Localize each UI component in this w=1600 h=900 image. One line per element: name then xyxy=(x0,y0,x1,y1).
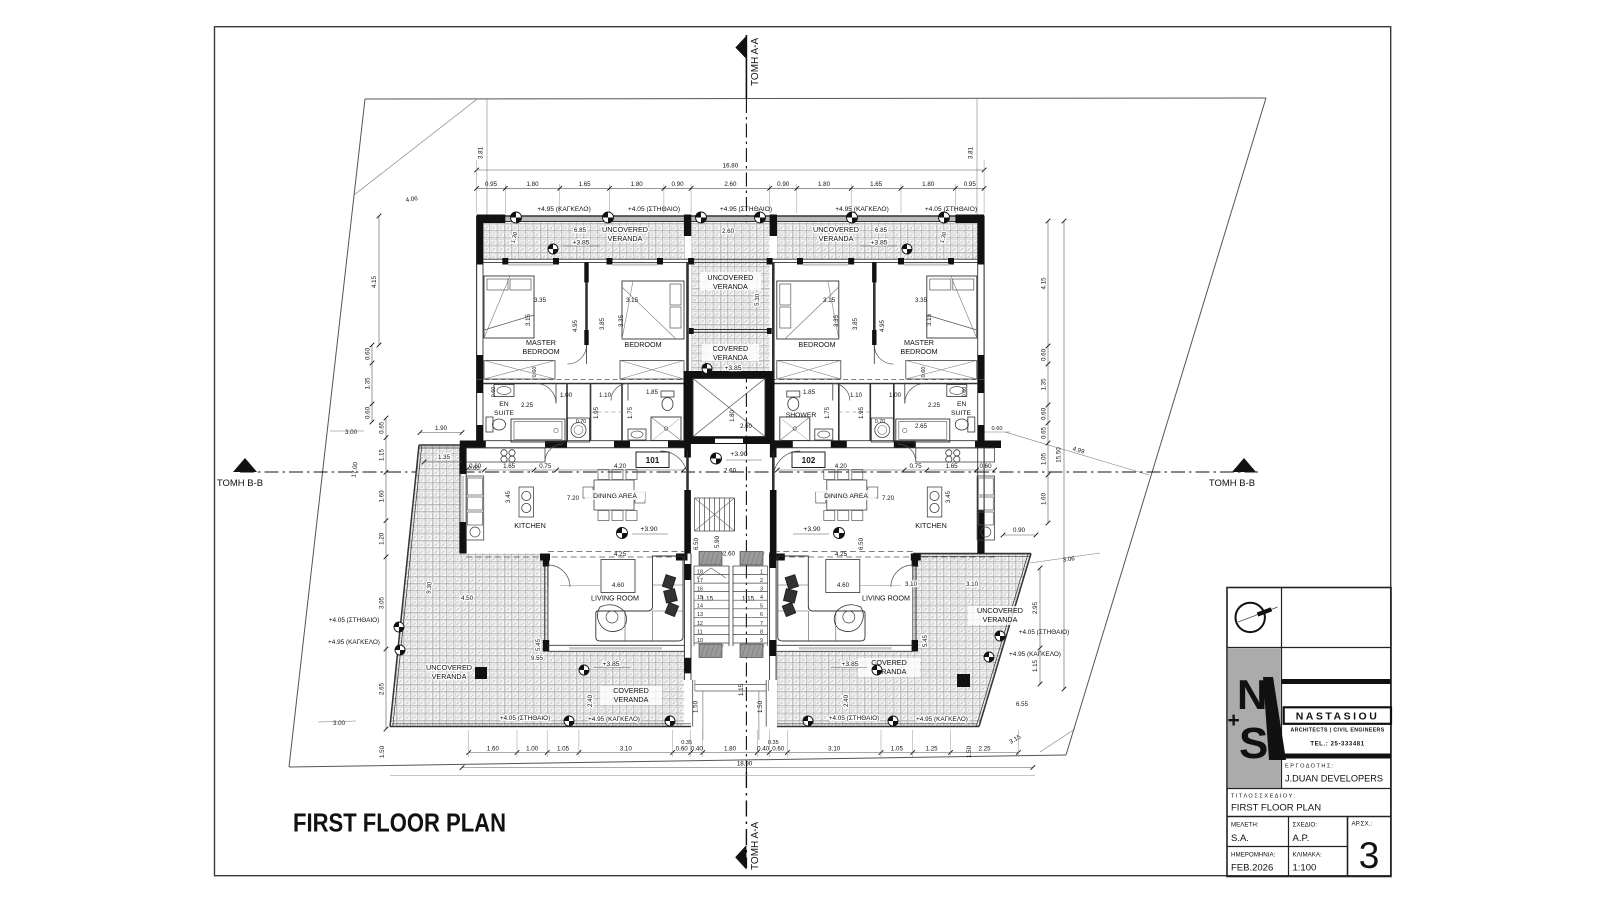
svg-text:16.80: 16.80 xyxy=(723,163,739,170)
svg-text:A.P.: A.P. xyxy=(1293,833,1310,844)
svg-text:+3.85: +3.85 xyxy=(870,240,887,247)
svg-text:12: 12 xyxy=(697,621,703,627)
svg-text:1.85: 1.85 xyxy=(646,389,659,396)
svg-text:1.50: 1.50 xyxy=(757,700,764,713)
svg-text:102: 102 xyxy=(802,456,816,465)
svg-text:ΚΛΙΜΑΚΑ:: ΚΛΙΜΑΚΑ: xyxy=(1293,852,1323,859)
svg-text:1.05: 1.05 xyxy=(891,745,904,752)
svg-text:3.10: 3.10 xyxy=(828,745,841,752)
svg-text:VERANDA: VERANDA xyxy=(608,234,643,243)
svg-text:9.55: 9.55 xyxy=(531,655,544,662)
svg-text:0.40: 0.40 xyxy=(757,745,770,752)
svg-text:0.60: 0.60 xyxy=(468,466,479,472)
svg-text:1.10: 1.10 xyxy=(599,392,612,399)
svg-text:4.15: 4.15 xyxy=(1041,277,1048,290)
svg-text:SHOWER: SHOWER xyxy=(786,412,817,419)
svg-text:1: 1 xyxy=(760,570,763,576)
svg-text:+3.85: +3.85 xyxy=(572,240,589,247)
svg-text:0.75: 0.75 xyxy=(539,463,552,470)
svg-text:1.00: 1.00 xyxy=(889,392,902,399)
svg-text:+4.95 (ΚΑΓΚΕΛΟ): +4.95 (ΚΑΓΚΕΛΟ) xyxy=(588,716,640,723)
svg-text:2.60: 2.60 xyxy=(723,551,736,558)
svg-text:1:100: 1:100 xyxy=(1293,863,1317,874)
svg-text:2.25: 2.25 xyxy=(978,745,991,752)
svg-text:1.75: 1.75 xyxy=(824,406,831,419)
svg-text:J.DUAN DEVELOPERS: J.DUAN DEVELOPERS xyxy=(1285,774,1383,784)
svg-text:3.85: 3.85 xyxy=(852,317,859,330)
svg-text:1.35: 1.35 xyxy=(438,454,451,461)
svg-text:ARCHITECTS | CIVIL ENGINEERS: ARCHITECTS | CIVIL ENGINEERS xyxy=(1290,728,1384,734)
svg-text:1.80: 1.80 xyxy=(526,181,539,188)
svg-text:5: 5 xyxy=(760,604,763,610)
svg-text:9: 9 xyxy=(760,638,763,644)
svg-text:KITCHEN: KITCHEN xyxy=(514,521,546,530)
svg-text:3: 3 xyxy=(760,587,763,593)
svg-text:ΤΟΜΗ Α-Α: ΤΟΜΗ Α-Α xyxy=(750,38,761,86)
svg-text:FIRST FLOOR PLAN: FIRST FLOOR PLAN xyxy=(293,810,506,838)
svg-text:0.60: 0.60 xyxy=(1041,407,1048,420)
svg-text:1.85: 1.85 xyxy=(803,389,816,396)
svg-text:0.75: 0.75 xyxy=(909,463,922,470)
svg-text:1.05: 1.05 xyxy=(1041,452,1048,465)
svg-text:2.95: 2.95 xyxy=(1032,601,1039,614)
svg-text:ΤΟΜΗ B-B: ΤΟΜΗ B-B xyxy=(1209,478,1255,489)
svg-text:6.85: 6.85 xyxy=(574,227,587,234)
svg-text:0.90: 0.90 xyxy=(777,181,790,188)
svg-text:MASTER: MASTER xyxy=(904,338,934,347)
svg-text:1.15: 1.15 xyxy=(738,683,745,696)
svg-text:3.45: 3.45 xyxy=(505,490,512,503)
svg-text:+4.95 (ΣΤΗΘΑΙΟ): +4.95 (ΣΤΗΘΑΙΟ) xyxy=(720,206,772,213)
svg-text:0.60: 0.60 xyxy=(962,387,968,398)
svg-text:3.10: 3.10 xyxy=(966,581,979,588)
svg-text:3.15: 3.15 xyxy=(926,313,933,326)
svg-text:UNCOVERED: UNCOVERED xyxy=(977,606,1023,615)
svg-text:0.40: 0.40 xyxy=(691,745,704,752)
svg-text:4.20: 4.20 xyxy=(614,463,627,470)
svg-text:6.85: 6.85 xyxy=(875,227,888,234)
svg-text:1.60: 1.60 xyxy=(487,745,500,752)
svg-text:UNCOVERED: UNCOVERED xyxy=(813,225,859,234)
svg-text:1.95: 1.95 xyxy=(593,406,600,419)
svg-text:0.95: 0.95 xyxy=(485,181,498,188)
svg-text:4.95: 4.95 xyxy=(879,319,886,332)
svg-text:4.25: 4.25 xyxy=(835,551,848,558)
svg-text:ΤΟΜΗ Α-Α: ΤΟΜΗ Α-Α xyxy=(750,822,761,870)
svg-text:Τ Ι Τ Λ Ο Σ Σ Χ Ε Δ Ι Ο Υ :: Τ Ι Τ Λ Ο Σ Σ Χ Ε Δ Ι Ο Υ : xyxy=(1231,794,1296,800)
svg-text:1.80: 1.80 xyxy=(724,745,737,752)
svg-text:0.60: 0.60 xyxy=(1041,348,1048,361)
svg-text:1.80: 1.80 xyxy=(631,181,644,188)
svg-text:18: 18 xyxy=(697,570,703,576)
svg-text:1.65: 1.65 xyxy=(579,181,592,188)
svg-text:3.35: 3.35 xyxy=(915,297,928,304)
svg-text:1.15: 1.15 xyxy=(742,596,755,603)
svg-text:BEDROOM: BEDROOM xyxy=(624,340,661,349)
svg-text:0.65: 0.65 xyxy=(379,421,386,434)
svg-text:0.90: 0.90 xyxy=(671,181,684,188)
svg-text:+3.85: +3.85 xyxy=(841,661,858,668)
svg-text:3.35: 3.35 xyxy=(534,297,547,304)
svg-text:+4.05 (ΣΤΗΘΑΙΟ): +4.05 (ΣΤΗΘΑΙΟ) xyxy=(500,715,551,722)
svg-text:6.50: 6.50 xyxy=(858,537,865,550)
svg-text:0.60: 0.60 xyxy=(992,426,1003,432)
svg-text:FEB.2026: FEB.2026 xyxy=(1231,863,1273,874)
svg-text:+4.95 (ΚΑΓΚΕΛΟ): +4.95 (ΚΑΓΚΕΛΟ) xyxy=(328,639,380,646)
svg-text:VERANDA: VERANDA xyxy=(614,695,649,704)
svg-text:2.40: 2.40 xyxy=(843,694,850,707)
svg-text:8: 8 xyxy=(760,629,763,635)
svg-text:COVERED: COVERED xyxy=(613,686,649,695)
svg-text:0.60: 0.60 xyxy=(921,367,927,378)
svg-text:0.70: 0.70 xyxy=(576,419,587,425)
svg-text:3.15: 3.15 xyxy=(626,297,639,304)
svg-text:11: 11 xyxy=(697,629,703,635)
svg-text:TEL.: 25-333481: TEL.: 25-333481 xyxy=(1310,742,1364,748)
svg-text:+4.95 (ΚΑΓΚΕΛΟ): +4.95 (ΚΑΓΚΕΛΟ) xyxy=(1009,651,1061,658)
svg-text:2.60: 2.60 xyxy=(724,468,737,475)
svg-text:3.10: 3.10 xyxy=(905,581,918,588)
svg-text:+4.95 (ΚΑΓΚΕΛΟ): +4.95 (ΚΑΓΚΕΛΟ) xyxy=(916,716,968,723)
svg-text:7.20: 7.20 xyxy=(882,495,895,502)
svg-text:1.65: 1.65 xyxy=(870,181,883,188)
svg-text:1.65: 1.65 xyxy=(503,463,516,470)
svg-text:S: S xyxy=(1239,719,1268,768)
svg-text:2.25: 2.25 xyxy=(928,402,941,409)
svg-text:+4.95 (ΚΑΓΚΕΛΟ): +4.95 (ΚΑΓΚΕΛΟ) xyxy=(537,206,591,213)
svg-text:+: + xyxy=(1228,709,1240,732)
svg-text:VERANDA: VERANDA xyxy=(432,672,467,681)
svg-text:BEDROOM: BEDROOM xyxy=(900,347,937,356)
svg-text:4: 4 xyxy=(760,595,763,601)
svg-text:+4.05 (ΣΤΗΘΑΙΟ): +4.05 (ΣΤΗΘΑΙΟ) xyxy=(925,206,977,213)
svg-text:4.15: 4.15 xyxy=(371,275,378,288)
svg-text:3.35: 3.35 xyxy=(833,314,840,327)
svg-text:0.70: 0.70 xyxy=(875,419,886,425)
svg-text:MASTER: MASTER xyxy=(526,338,556,347)
svg-text:4.95: 4.95 xyxy=(572,319,579,332)
svg-text:1.00: 1.00 xyxy=(560,392,573,399)
svg-text:3.05: 3.05 xyxy=(379,596,386,609)
svg-text:7.20: 7.20 xyxy=(567,495,580,502)
svg-text:1.75: 1.75 xyxy=(627,406,634,419)
svg-text:1.60: 1.60 xyxy=(379,490,386,503)
svg-text:+3.90: +3.90 xyxy=(640,526,657,533)
svg-text:3: 3 xyxy=(1359,835,1380,876)
svg-text:0.60: 0.60 xyxy=(365,406,372,419)
svg-text:3.81: 3.81 xyxy=(968,146,975,159)
svg-text:BEDROOM: BEDROOM xyxy=(522,347,559,356)
svg-text:2.60: 2.60 xyxy=(740,424,752,430)
svg-text:UNCOVERED: UNCOVERED xyxy=(426,663,472,672)
svg-text:ΑΡ.ΣΧ.:: ΑΡ.ΣΧ.: xyxy=(1352,821,1373,828)
svg-text:13: 13 xyxy=(697,612,703,618)
svg-text:2.65: 2.65 xyxy=(379,682,386,695)
svg-text:FIRST FLOOR PLAN: FIRST FLOOR PLAN xyxy=(1231,803,1321,814)
svg-text:0.60: 0.60 xyxy=(772,745,785,752)
svg-text:VERANDA: VERANDA xyxy=(819,234,854,243)
svg-text:DINING AREA: DINING AREA xyxy=(593,493,637,500)
svg-text:3.00: 3.00 xyxy=(345,429,358,436)
svg-text:+4.05 (ΣΤΗΘΑΙΟ): +4.05 (ΣΤΗΘΑΙΟ) xyxy=(628,206,680,213)
svg-text:1.50: 1.50 xyxy=(379,745,386,758)
svg-text:2.60: 2.60 xyxy=(724,181,737,188)
svg-text:1.80: 1.80 xyxy=(818,181,831,188)
svg-text:+3.85: +3.85 xyxy=(602,661,619,668)
svg-text:1.00: 1.00 xyxy=(526,745,539,752)
svg-text:6: 6 xyxy=(760,612,763,618)
svg-text:LIVING ROOM: LIVING ROOM xyxy=(862,594,910,603)
svg-text:LIVING ROOM: LIVING ROOM xyxy=(591,594,639,603)
svg-text:0.60: 0.60 xyxy=(365,347,372,360)
svg-text:DINING AREA: DINING AREA xyxy=(824,493,868,500)
svg-text:1.15: 1.15 xyxy=(701,596,714,603)
svg-text:15.50: 15.50 xyxy=(1056,447,1063,463)
svg-text:2: 2 xyxy=(760,578,763,584)
svg-text:BEDROOM: BEDROOM xyxy=(798,340,835,349)
svg-text:4.60: 4.60 xyxy=(837,582,850,589)
svg-text:1.80: 1.80 xyxy=(730,410,736,422)
svg-text:9.30: 9.30 xyxy=(425,581,433,594)
svg-text:1.50: 1.50 xyxy=(966,745,973,758)
svg-text:1.10: 1.10 xyxy=(850,392,863,399)
svg-text:1.50: 1.50 xyxy=(693,700,700,713)
svg-text:+4.05 (ΣΤΗΘΑΙΟ): +4.05 (ΣΤΗΘΑΙΟ) xyxy=(829,715,880,722)
svg-text:ΣΧΕΔΙΟ:: ΣΧΕΔΙΟ: xyxy=(1293,822,1318,829)
svg-text:1.15: 1.15 xyxy=(1032,659,1039,672)
svg-text:N: N xyxy=(1237,671,1267,718)
svg-text:EN: EN xyxy=(957,401,967,408)
svg-text:VERANDA: VERANDA xyxy=(713,282,748,291)
svg-text:VERANDA: VERANDA xyxy=(713,353,748,362)
svg-text:0.65: 0.65 xyxy=(1041,426,1048,439)
svg-text:7: 7 xyxy=(760,621,763,627)
svg-text:2.40: 2.40 xyxy=(587,694,594,707)
svg-text:4.25: 4.25 xyxy=(614,551,627,558)
svg-text:+3.85: +3.85 xyxy=(724,365,741,372)
svg-text:KITCHEN: KITCHEN xyxy=(915,521,947,530)
svg-text:3.15: 3.15 xyxy=(823,297,836,304)
svg-text:SUITE: SUITE xyxy=(951,410,971,417)
svg-text:1.15: 1.15 xyxy=(379,448,386,461)
svg-text:1.60: 1.60 xyxy=(1041,492,1048,505)
svg-text:0.90: 0.90 xyxy=(1013,527,1026,534)
svg-text:VERANDA: VERANDA xyxy=(983,615,1018,624)
svg-text:4.60: 4.60 xyxy=(612,582,625,589)
svg-text:4.20: 4.20 xyxy=(835,463,848,470)
svg-text:UNCOVERED: UNCOVERED xyxy=(602,225,648,234)
svg-text:10: 10 xyxy=(697,638,703,644)
svg-text:ΤΟΜΗ B-B: ΤΟΜΗ B-B xyxy=(217,478,263,489)
svg-text:1.25: 1.25 xyxy=(926,745,939,752)
svg-text:16: 16 xyxy=(697,587,703,593)
svg-text:NASTASIOU: NASTASIOU xyxy=(1296,711,1380,723)
svg-text:COVERED: COVERED xyxy=(713,344,749,353)
svg-text:3.81: 3.81 xyxy=(478,146,485,159)
svg-text:2.65: 2.65 xyxy=(915,423,928,430)
svg-text:+4.05 (ΣΤΗΘΑΙΟ): +4.05 (ΣΤΗΘΑΙΟ) xyxy=(1019,629,1070,636)
svg-text:0.60: 0.60 xyxy=(491,387,497,398)
svg-text:EN: EN xyxy=(499,401,509,408)
svg-text:6.55: 6.55 xyxy=(1016,701,1029,708)
svg-text:18.90: 18.90 xyxy=(737,761,753,768)
svg-text:1.95: 1.95 xyxy=(858,406,865,419)
svg-text:+4.05 (ΣΤΗΘΑΙΟ): +4.05 (ΣΤΗΘΑΙΟ) xyxy=(329,617,380,624)
svg-text:+3.90: +3.90 xyxy=(730,451,747,458)
svg-text:5.30: 5.30 xyxy=(754,293,762,306)
svg-text:ΗΜΕΡΟΜΗΝΙΑ:: ΗΜΕΡΟΜΗΝΙΑ: xyxy=(1231,852,1276,859)
svg-text:3.35: 3.35 xyxy=(618,314,625,327)
svg-text:5.45: 5.45 xyxy=(922,634,929,647)
svg-text:3.15: 3.15 xyxy=(525,313,532,326)
svg-text:4.50: 4.50 xyxy=(461,595,474,602)
svg-text:ΜΕΛΕΤΗ:: ΜΕΛΕΤΗ: xyxy=(1231,822,1259,829)
svg-text:5.90: 5.90 xyxy=(714,535,721,548)
svg-text:UNCOVERED: UNCOVERED xyxy=(707,273,753,282)
svg-text:5.45: 5.45 xyxy=(535,638,542,651)
svg-text:3.85: 3.85 xyxy=(599,317,606,330)
svg-text:3.10: 3.10 xyxy=(620,745,633,752)
svg-text:6.50: 6.50 xyxy=(693,537,700,550)
svg-text:2.25: 2.25 xyxy=(521,402,534,409)
svg-text:14: 14 xyxy=(697,604,703,610)
svg-text:0.95: 0.95 xyxy=(964,181,977,188)
svg-text:Ε Ρ Γ Ο Δ Ο Τ Η Σ :: Ε Ρ Γ Ο Δ Ο Τ Η Σ : xyxy=(1285,764,1334,770)
svg-text:+4.95 (ΚΑΓΚΕΛΟ): +4.95 (ΚΑΓΚΕΛΟ) xyxy=(835,206,889,213)
svg-text:101: 101 xyxy=(646,456,660,465)
svg-text:1.35: 1.35 xyxy=(1041,378,1048,391)
svg-text:1.80: 1.80 xyxy=(922,181,935,188)
svg-text:2.60: 2.60 xyxy=(722,228,735,235)
svg-text:1.35: 1.35 xyxy=(365,377,372,390)
svg-text:1.65: 1.65 xyxy=(946,463,959,470)
svg-text:1.90: 1.90 xyxy=(435,425,448,432)
svg-text:0.60: 0.60 xyxy=(676,745,689,752)
svg-text:17: 17 xyxy=(697,578,703,584)
svg-text:3.45: 3.45 xyxy=(945,490,952,503)
svg-text:1.05: 1.05 xyxy=(557,745,570,752)
svg-text:SUITE: SUITE xyxy=(494,410,514,417)
svg-text:1.20: 1.20 xyxy=(379,532,386,545)
svg-text:0.60: 0.60 xyxy=(979,463,992,470)
svg-text:+3.90: +3.90 xyxy=(803,526,820,533)
svg-text:S.A.: S.A. xyxy=(1231,833,1249,844)
svg-text:0.60: 0.60 xyxy=(532,367,538,378)
